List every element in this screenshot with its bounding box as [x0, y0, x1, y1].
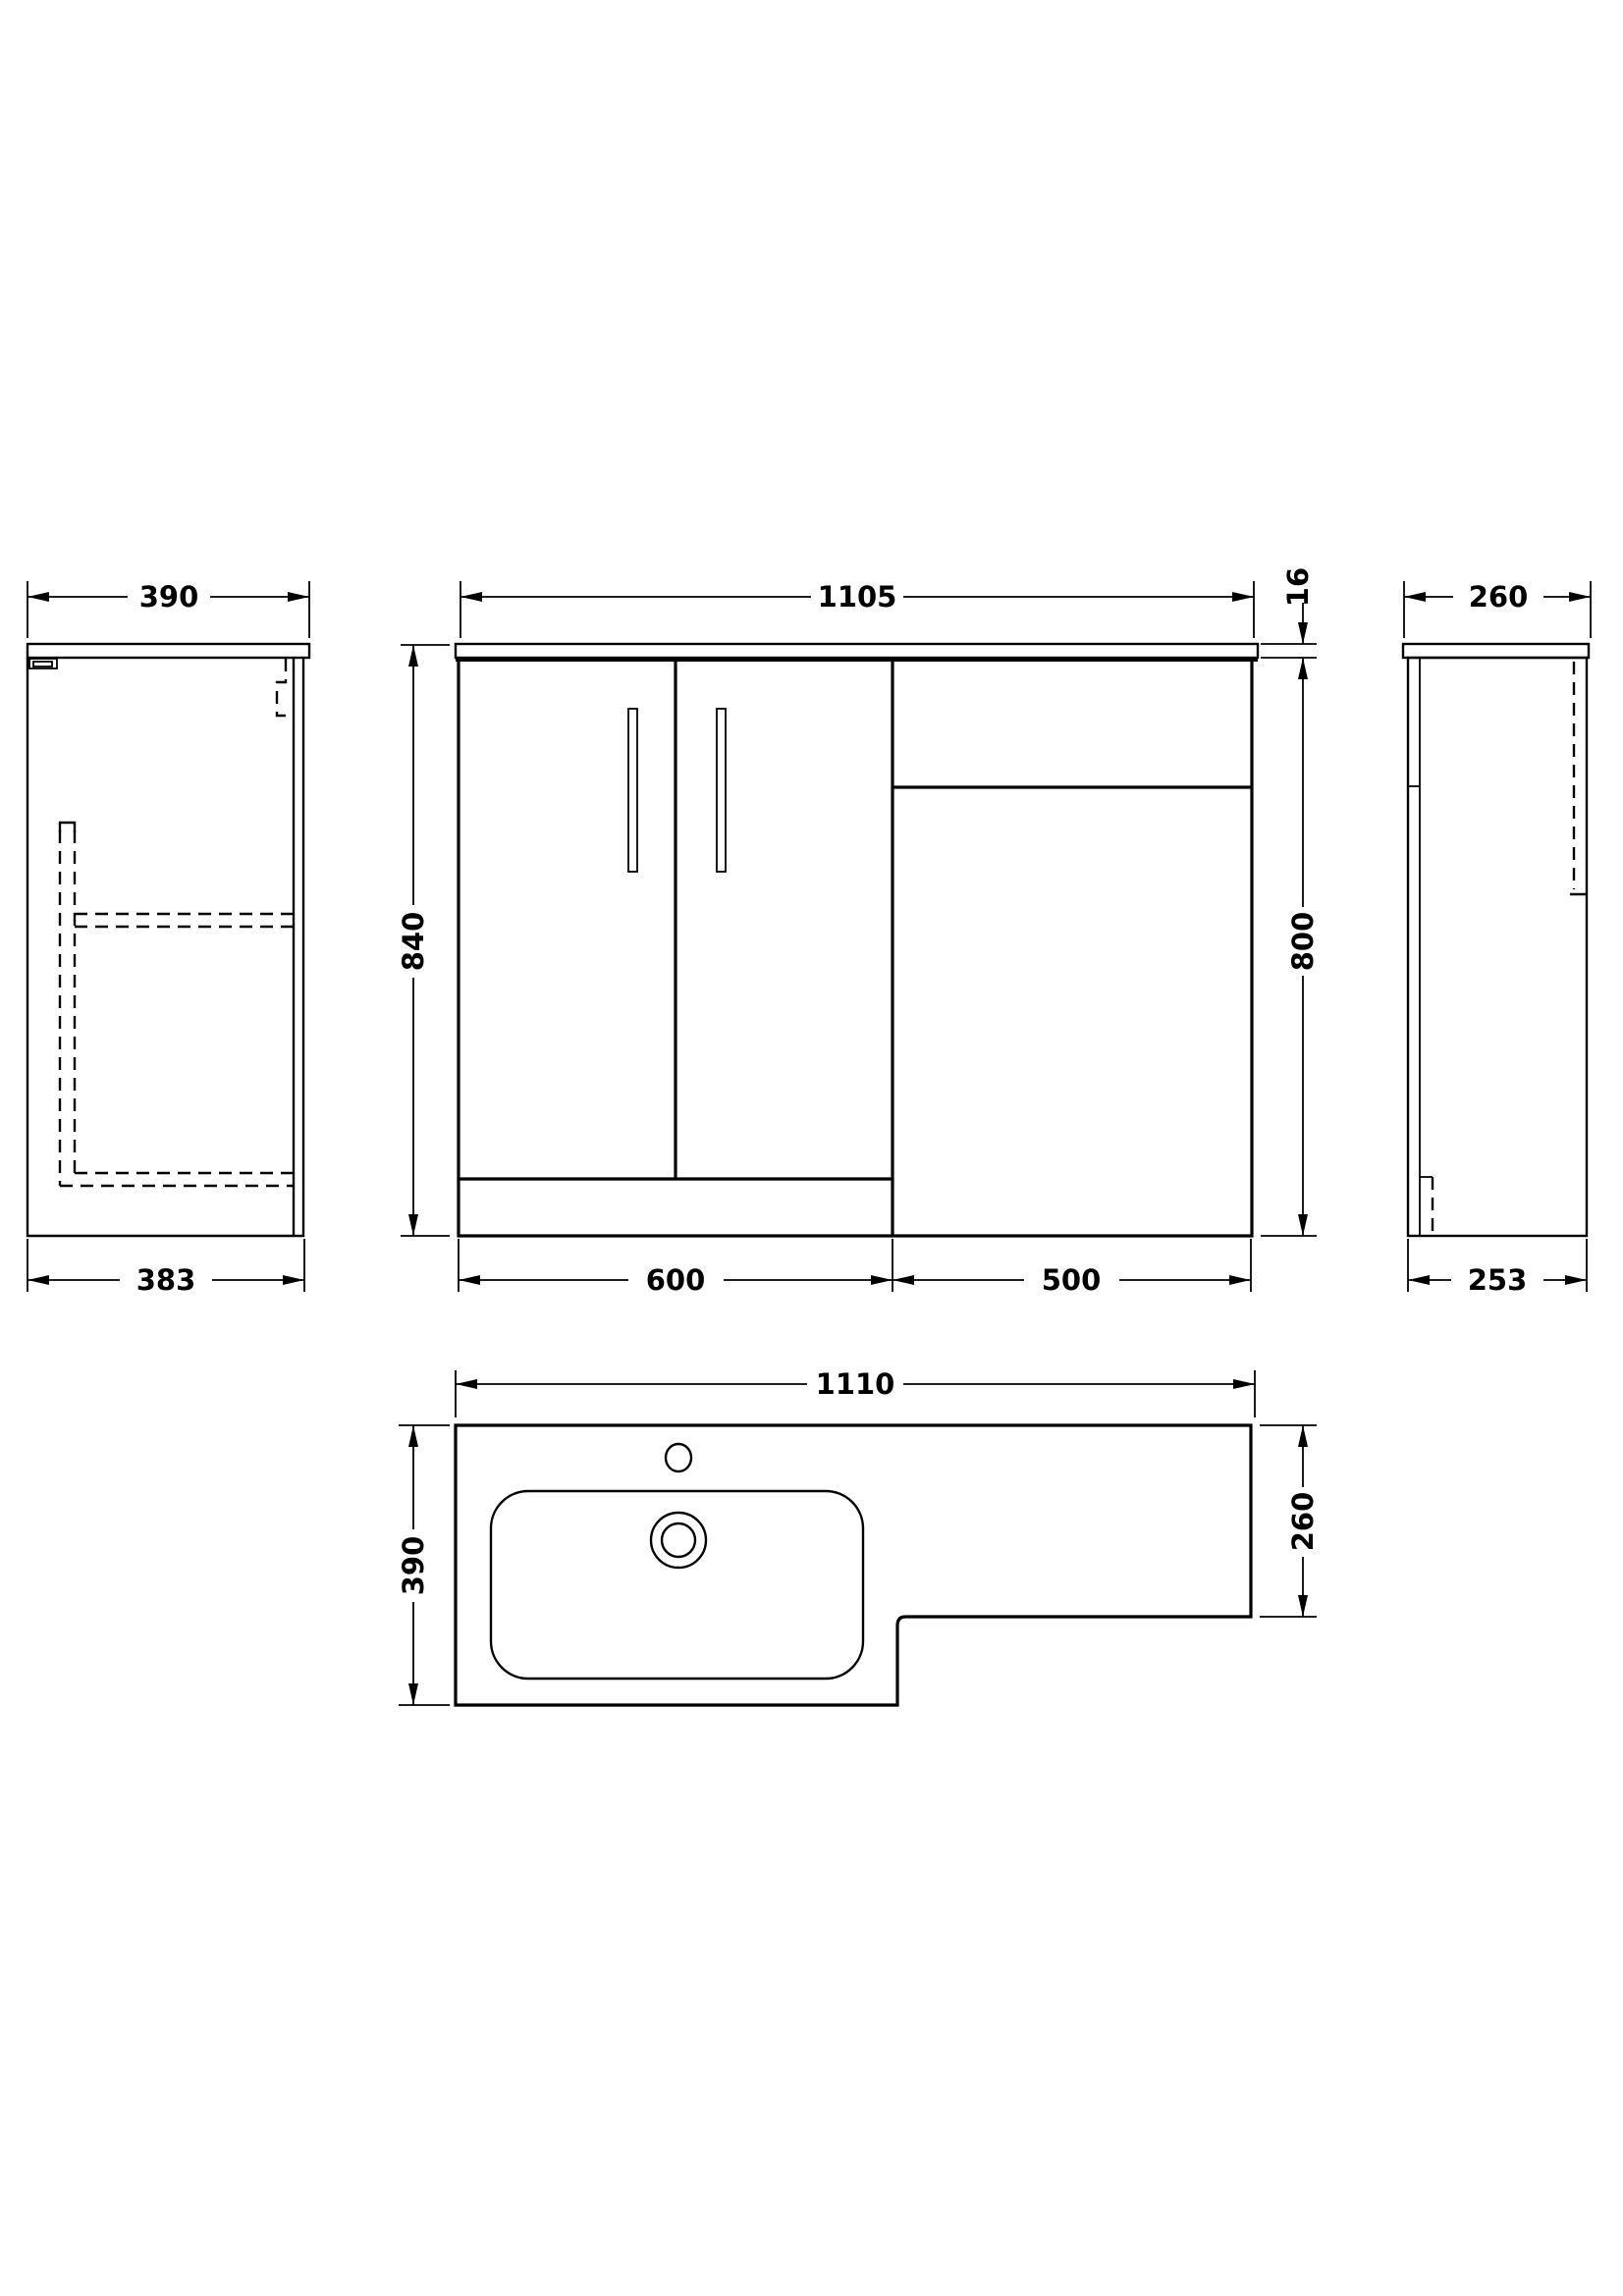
arrowhead [27, 1275, 49, 1285]
arrowhead [408, 1214, 418, 1236]
arrowhead [1298, 622, 1308, 644]
dim-label: 1105 [818, 580, 897, 614]
arrowhead [408, 1683, 418, 1705]
tap-hole [666, 1444, 691, 1471]
dim-plan-width: 1110 [456, 1367, 1255, 1417]
arrowhead [459, 1275, 480, 1285]
dim-label: 840 [397, 912, 430, 972]
dim-right-side-width: 260 [1404, 580, 1591, 638]
hidden-basin-step-line [277, 659, 294, 716]
arrowhead [283, 1275, 304, 1285]
side-view-left [27, 644, 309, 1236]
dim-carcass-height: 800 [1261, 658, 1320, 1236]
waste-drain-inner [662, 1523, 695, 1557]
arrowhead [1298, 1425, 1308, 1447]
dim-front-width: 1105 [460, 580, 1254, 638]
dim-label: 500 [1042, 1263, 1102, 1297]
dim-label: 390 [139, 580, 199, 614]
dim-left-side-width: 390 [27, 580, 309, 638]
cabinet-side-outline [1408, 658, 1587, 1236]
arrowhead [1232, 592, 1254, 602]
dim-label: 390 [397, 1536, 430, 1596]
dim-countertop-thickness: 16 [1261, 567, 1317, 679]
arrowhead [1298, 1214, 1308, 1236]
dim-label: 800 [1286, 912, 1320, 972]
dim-label: 1110 [816, 1367, 895, 1401]
arrowhead [1565, 1275, 1587, 1285]
dim-label: 260 [1469, 580, 1529, 614]
dim-label: 600 [646, 1263, 706, 1297]
arrowhead [408, 1425, 418, 1447]
arrowhead [1569, 592, 1591, 602]
arrowhead [456, 1379, 477, 1389]
dim-label: 253 [1468, 1263, 1528, 1297]
dim-plan-depth: 390 [397, 1425, 450, 1705]
arrowhead [408, 645, 418, 667]
arrowhead [1298, 1595, 1308, 1617]
front-view [456, 644, 1258, 1236]
arrowhead [460, 592, 482, 602]
arrowhead [1229, 1275, 1251, 1285]
dim-label: 383 [136, 1263, 196, 1297]
waste-drain-outer [651, 1513, 706, 1568]
basin-bowl-outline [491, 1491, 863, 1679]
countertop-side-profile [1403, 644, 1589, 658]
plan-view [456, 1425, 1251, 1705]
side-view-right [1403, 644, 1589, 1236]
arrowhead [893, 1275, 914, 1285]
countertop-side-profile [27, 644, 309, 658]
dim-right-side-depth: 253 [1408, 1239, 1587, 1297]
left-door-handle [628, 709, 637, 872]
dim-label: 16 [1281, 567, 1315, 607]
dim-plan-wc-depth: 260 [1260, 1425, 1320, 1617]
arrowhead [1233, 1379, 1255, 1389]
arrowhead [871, 1275, 893, 1285]
right-door-handle [717, 709, 726, 872]
arrowhead [27, 592, 49, 602]
dim-front-height: 840 [397, 645, 450, 1236]
countertop-front [456, 644, 1258, 658]
hidden-panel-cap [60, 823, 75, 832]
technical-drawing-page: 390 383 1105 [0, 0, 1623, 2296]
arrowhead [1408, 1275, 1430, 1285]
dim-wc-width: 500 [893, 1239, 1251, 1297]
dim-vanity-width: 600 [459, 1239, 893, 1297]
arrowhead [288, 592, 309, 602]
dim-left-side-depth: 383 [27, 1239, 304, 1297]
worktop-outline [456, 1425, 1251, 1705]
dim-label: 260 [1286, 1492, 1320, 1552]
wall-bracket-inner [33, 662, 52, 667]
carcass-outline [459, 660, 1252, 1236]
arrowhead [1404, 592, 1426, 602]
vanity-unit-dimension-drawing: 390 383 1105 [0, 0, 1623, 2296]
cabinet-side-outline [27, 658, 303, 1236]
